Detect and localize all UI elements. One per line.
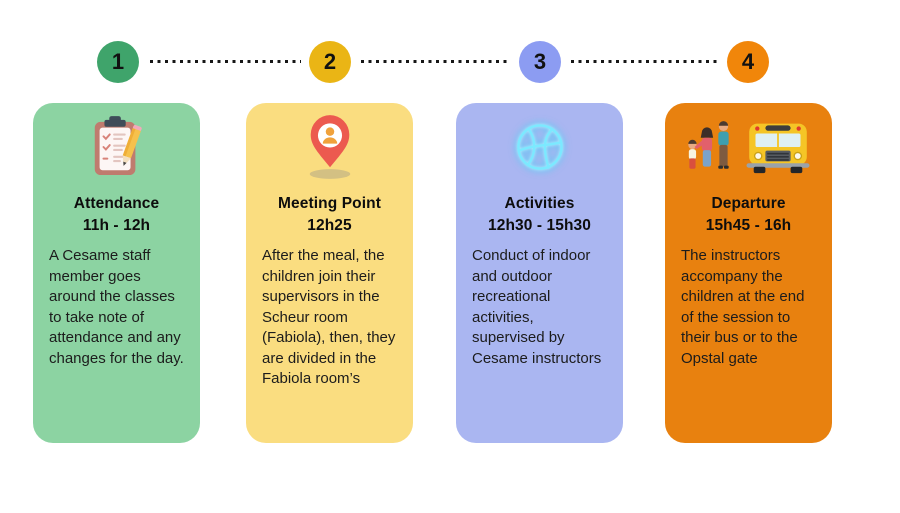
card-description: After the meal, the children join their …: [262, 246, 397, 390]
card-time: 15h45 - 16h: [681, 215, 816, 237]
clipboard-checklist-icon: [88, 115, 146, 184]
step-circle-2: 2: [309, 41, 351, 83]
step-number-3: 3: [534, 49, 546, 75]
map-pin-icon: [303, 113, 357, 186]
card-time: 12h25: [262, 215, 397, 237]
card-description: Conduct of indoor and outdoor recreation…: [472, 246, 607, 369]
step-circle-3: 3: [519, 41, 561, 83]
card-meeting-point: Meeting Point 12h25 After the meal, the …: [246, 103, 413, 443]
card-attendance: Attendance 11h - 12h A Cesame staff memb…: [33, 103, 200, 443]
card-title: Departure: [681, 193, 816, 215]
card-title-block: Activities 12h30 - 15h30: [472, 193, 607, 237]
step-circle-1: 1: [97, 41, 139, 83]
timeline-connector-dots: [571, 60, 719, 63]
card-time: 12h30 - 15h30: [472, 215, 607, 237]
card-title: Meeting Point: [262, 193, 397, 215]
step-number-2: 2: [324, 49, 336, 75]
timeline-connector-dots: [361, 60, 511, 63]
timeline-connector-dots: [150, 60, 301, 63]
school-bus-icon: [742, 120, 814, 179]
card-description: The instructors accompany the children a…: [681, 246, 816, 369]
family-icon: [684, 117, 734, 182]
card-title-block: Meeting Point 12h25: [262, 193, 397, 237]
card-title-block: Attendance 11h - 12h: [49, 193, 184, 237]
card-description: A Cesame staff member goes around the cl…: [49, 246, 184, 369]
card-icon-row: [472, 115, 607, 183]
step-circle-4: 4: [727, 41, 769, 83]
card-icon-row: [262, 115, 397, 183]
card-title: Attendance: [49, 193, 184, 215]
basketball-icon: [510, 117, 570, 182]
card-title: Activities: [472, 193, 607, 215]
card-time: 11h - 12h: [49, 215, 184, 237]
schedule-infographic: 1 2 3 4: [0, 0, 900, 513]
step-number-1: 1: [112, 49, 124, 75]
step-number-4: 4: [742, 49, 754, 75]
card-icon-row: [49, 115, 184, 183]
card-title-block: Departure 15h45 - 16h: [681, 193, 816, 237]
card-icon-row: [681, 115, 816, 183]
card-activities: Activities 12h30 - 15h30 Conduct of indo…: [456, 103, 623, 443]
card-departure: Departure 15h45 - 16h The instructors ac…: [665, 103, 832, 443]
